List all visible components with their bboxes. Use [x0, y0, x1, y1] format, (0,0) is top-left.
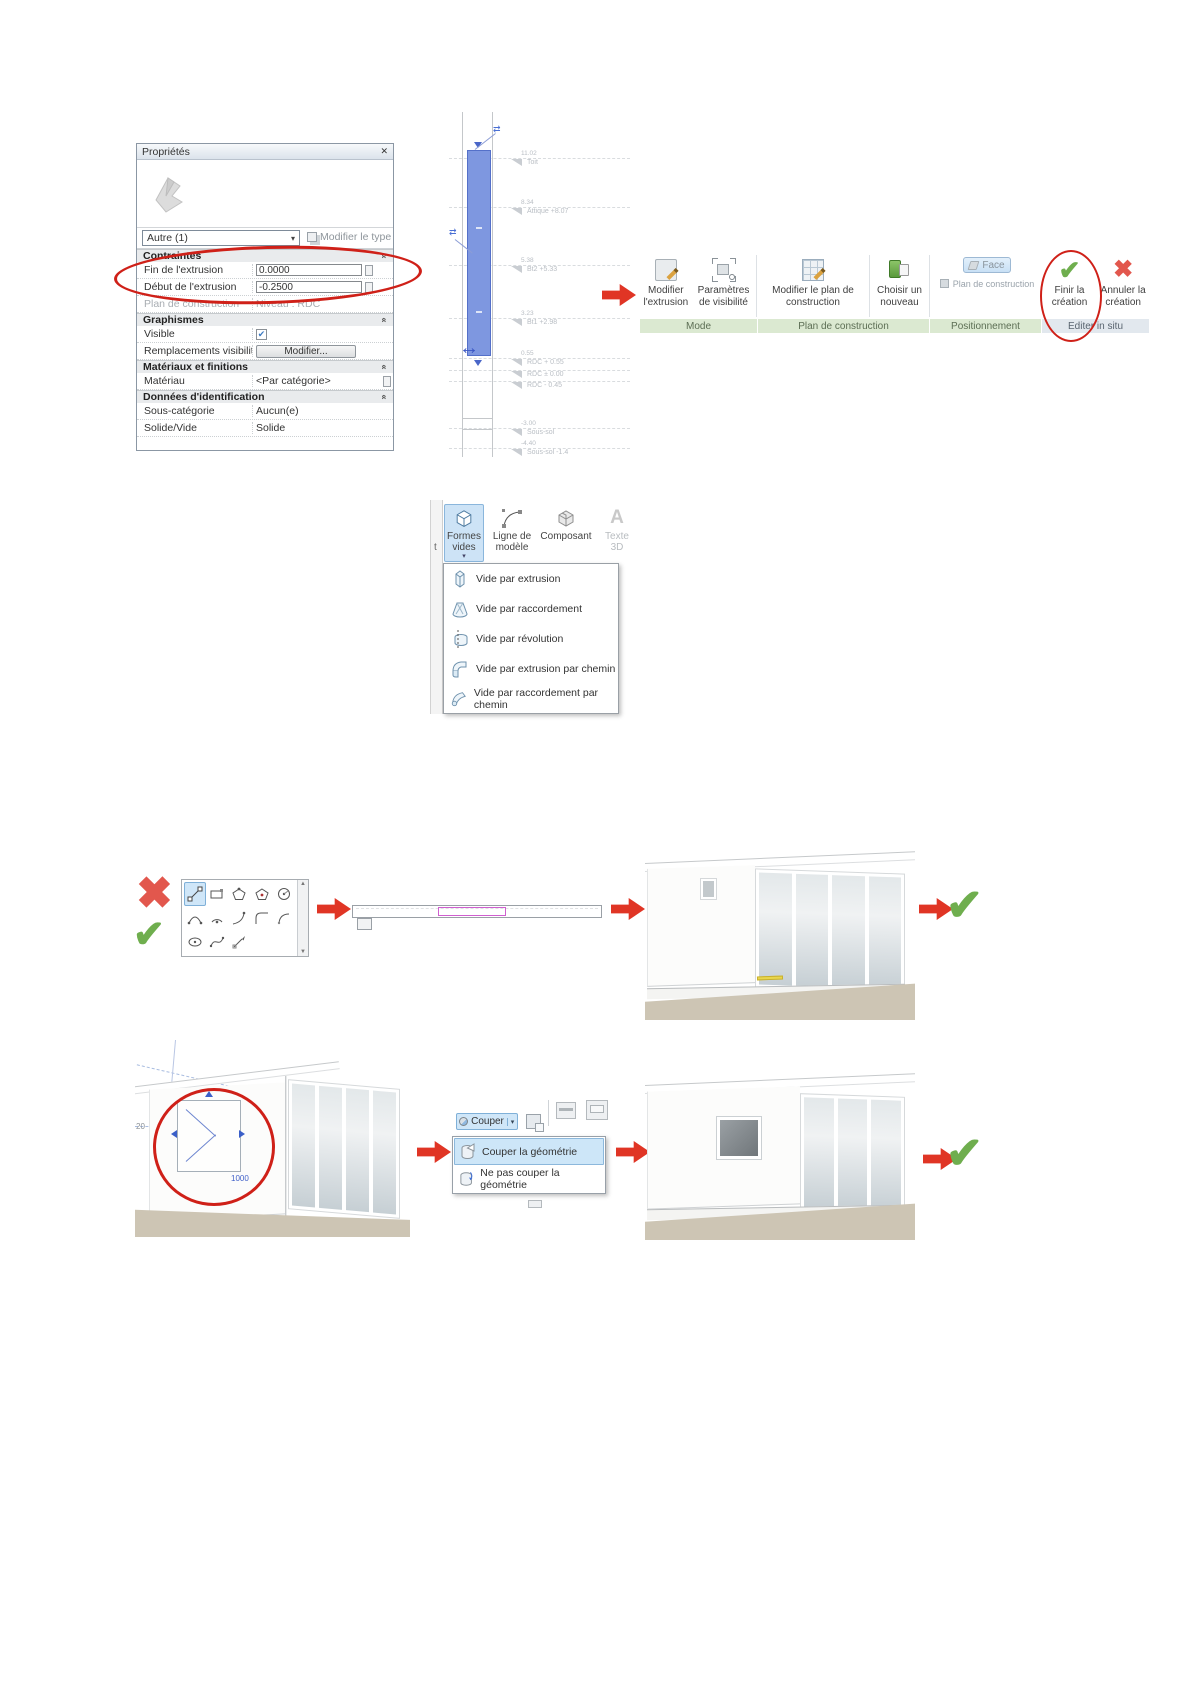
grip-handle[interactable]	[476, 311, 482, 313]
annuler-creation-button[interactable]: ✖ Annuler la création	[1096, 253, 1150, 319]
menu-item-vide-raccordement[interactable]: Vide par raccordement	[444, 594, 618, 624]
prop-value[interactable]: Solide	[253, 422, 391, 434]
properties-title: Propriétés	[142, 146, 190, 158]
glass-pane	[869, 876, 902, 989]
clipped-toolbar-icon	[556, 1102, 576, 1119]
group-mode: Mode	[640, 319, 758, 333]
close-icon[interactable]: ✕	[380, 146, 388, 157]
wall-line	[462, 418, 493, 419]
void-swept-blend-icon	[450, 688, 468, 710]
menu-item-vide-revolution[interactable]: Vide par révolution	[444, 624, 618, 654]
chevron-down-icon[interactable]: ▾	[291, 234, 295, 243]
chevron-down-icon[interactable]: ▾	[507, 1118, 517, 1126]
choisir-nouveau-button[interactable]: Choisir un nouveau	[871, 253, 929, 319]
glass-pane	[373, 1091, 396, 1215]
tool-line[interactable]	[184, 882, 206, 906]
uncut-geometry-icon	[458, 1169, 475, 1189]
type-selector-value: Autre (1)	[147, 232, 188, 244]
cancel-x-icon: ✖	[1113, 258, 1133, 282]
positionnement-stack: Face Plan de construction	[931, 253, 1042, 319]
void-forms-dropdown-menu: Vide par extrusion Vide par raccordement…	[443, 563, 619, 714]
pick-new-plane-icon	[887, 258, 911, 282]
menu-item-vide-extrusion-chemin[interactable]: Vide par extrusion par chemin	[444, 654, 618, 684]
modifier-extrusion-button[interactable]: Modifier l'extrusion	[640, 253, 692, 319]
beam-sketch	[350, 895, 608, 937]
prop-row-solide-vide: Solide/Vide Solide	[137, 420, 393, 437]
prop-label: Remplacements visibilité...	[137, 345, 253, 357]
void-extrusion-icon	[450, 568, 470, 590]
prop-row-materiau: Matériau <Par catégorie>	[137, 373, 393, 390]
formes-vides-button[interactable]: Formes vides ▾	[444, 504, 484, 562]
model-line-icon	[499, 505, 525, 531]
modifier-button[interactable]: Modifier...	[256, 345, 356, 358]
prop-row-remplacements: Remplacements visibilité... Modifier...	[137, 343, 393, 360]
clipped-ui-fragment	[528, 1200, 542, 1208]
flow-arrow	[417, 1140, 451, 1164]
workplane-icon	[940, 279, 949, 288]
corner-edge	[285, 1076, 287, 1218]
edit-extrusion-icon	[655, 259, 677, 281]
corner-sketch-view: 1000 20	[135, 1040, 410, 1237]
flow-arrow	[317, 897, 351, 921]
tool-arc-tangent[interactable]	[228, 906, 250, 930]
beam-support	[357, 918, 372, 930]
properties-header: Propriétés ✕	[137, 144, 393, 160]
wall-edge-line	[492, 112, 493, 457]
menu-item-vide-raccordement-chemin[interactable]: Vide par raccordement par chemin	[444, 684, 618, 714]
tool-ellipse[interactable]	[184, 930, 206, 954]
collapse-icon[interactable]: «	[379, 364, 389, 369]
glass-pane	[804, 1097, 834, 1208]
shape-handle-icon[interactable]	[474, 360, 482, 366]
tool-spline[interactable]	[206, 930, 228, 954]
tool-rectangle[interactable]	[206, 882, 228, 906]
plan-construction-button[interactable]: Plan de construction	[934, 276, 1041, 291]
void-cube-icon	[451, 506, 477, 531]
stretch-arrow-icon[interactable]: ↔	[459, 338, 479, 358]
prop-label: Sous-catégorie	[137, 405, 253, 417]
clipped-label-fragment: t	[434, 542, 437, 553]
face-button[interactable]: Face	[963, 257, 1010, 273]
menu-item-couper-geometrie[interactable]: Couper la géométrie	[454, 1138, 604, 1165]
cut-dropdown-menu: Couper la géométrie Ne pas couper la géo…	[452, 1136, 606, 1194]
family-preview-image	[142, 166, 196, 220]
level-head-icon	[511, 266, 522, 273]
composant-button[interactable]: Composant	[540, 504, 592, 562]
tool-polygon-inscribed[interactable]	[228, 882, 250, 906]
cut-geometry-icon	[459, 1142, 477, 1162]
parametres-visibilite-button[interactable]: Paramètres de visibilité	[692, 253, 756, 319]
building-3d-view	[645, 843, 915, 1020]
visible-checkbox[interactable]: ✔	[256, 329, 267, 340]
chevron-down-icon: ▾	[462, 553, 466, 561]
cut-icon	[459, 1117, 468, 1126]
tool-polygon-circumscribed[interactable]	[251, 882, 273, 906]
modify-type-label: Modifier le type	[320, 231, 391, 243]
glass-pane	[319, 1086, 342, 1210]
type-preview	[137, 160, 393, 228]
small-window	[701, 879, 716, 899]
prop-row-sous-categorie: Sous-catégorie Aucun(e)	[137, 403, 393, 420]
level-head-icon	[511, 449, 522, 456]
tool-fillet-arc[interactable]	[251, 906, 273, 930]
modify-type-icon	[307, 232, 317, 242]
void-revolve-icon	[450, 628, 470, 650]
app-edge-strip: t	[430, 500, 443, 714]
section-donnees[interactable]: Données d'identification «	[137, 390, 393, 403]
curtain-wall	[800, 1093, 905, 1215]
level-head-icon	[511, 319, 522, 326]
prop-row-visible: Visible ✔	[137, 326, 393, 343]
level-head-icon	[511, 382, 522, 389]
wall-line	[462, 429, 493, 430]
glass-pane	[838, 1098, 868, 1209]
tool-circle[interactable]	[273, 882, 295, 906]
prop-label: Solide/Vide	[137, 422, 253, 434]
draw-tool-palette: ▲ ▼	[181, 879, 309, 957]
menu-item-ne-pas-couper[interactable]: Ne pas couper la géométrie	[454, 1165, 604, 1192]
section-label: Graphismes	[143, 314, 204, 326]
associate-param-button[interactable]	[383, 376, 391, 387]
face-icon	[968, 261, 980, 270]
level-head-icon	[511, 371, 522, 378]
component-icon	[553, 505, 579, 531]
annotation-x-icon: ✖	[136, 872, 173, 916]
level-marker: RDC - 0.45	[449, 381, 630, 382]
tool-arc-start-end[interactable]	[184, 906, 206, 930]
elevation-view: 11.02 Toit 8.34 Attique +8.07 5.38 Bt2 +…	[445, 112, 630, 457]
grip-handle[interactable]	[476, 227, 482, 229]
level-head-icon	[511, 429, 522, 436]
glass-pane	[759, 873, 792, 986]
wall-edge-line	[462, 112, 463, 457]
prop-label: Matériau	[137, 375, 253, 387]
glass-pane	[832, 875, 865, 988]
glass-pane	[796, 874, 829, 987]
group-plan-construction: Plan de construction	[758, 319, 930, 333]
collapse-icon[interactable]: «	[379, 317, 389, 322]
type-selector[interactable]: Autre (1) ▾	[142, 230, 300, 246]
section-materiaux[interactable]: Matériaux et finitions «	[137, 360, 393, 373]
glass-pane	[871, 1100, 901, 1211]
workplane-grid-icon	[802, 259, 824, 281]
cut-window-opening	[717, 1117, 761, 1159]
void-sketch-rectangle	[438, 907, 506, 916]
level-marker: RDC ± 0.00	[449, 370, 630, 371]
section-label: Matériaux et finitions	[143, 361, 248, 373]
annotation-ellipse-finish	[1040, 250, 1102, 342]
void-sweep-icon	[450, 658, 470, 680]
section-graphismes[interactable]: Graphismes «	[137, 313, 393, 326]
level-head-icon	[511, 159, 522, 166]
tool-arc-center-ends[interactable]	[206, 906, 228, 930]
scroll-down-icon[interactable]: ▼	[300, 949, 306, 955]
tool-arc-variant[interactable]	[273, 906, 295, 930]
section-label: Données d'identification	[143, 391, 265, 403]
modifier-plan-button[interactable]: Modifier le plan de construction	[758, 253, 867, 319]
ligne-modele-button[interactable]: Ligne de modèle	[490, 504, 534, 562]
flow-arrow	[611, 897, 645, 921]
glass-pane	[292, 1083, 315, 1207]
flip-control-icon[interactable]: ⇄	[449, 228, 457, 237]
join-geometry-icon[interactable]	[526, 1114, 541, 1129]
text-3d-icon: A	[610, 505, 624, 531]
cut-geometry-panel: Couper ▾ Couper la géométrie Ne pas coup…	[448, 1100, 616, 1212]
couper-button[interactable]: Couper ▾	[456, 1113, 518, 1130]
level-head-icon	[511, 359, 522, 366]
menu-item-vide-extrusion[interactable]: Vide par extrusion	[444, 564, 618, 594]
glass-pane	[346, 1088, 369, 1212]
forms-ribbon-panel: Formes vides ▾ Ligne de modèle Composant…	[444, 504, 636, 562]
annotation-ellipse-sketch	[153, 1088, 275, 1206]
tutorial-page: Propriétés ✕ Autre (1) ▾ Modifier le typ…	[0, 0, 1196, 1692]
annotation-check-icon: ✔	[946, 1132, 983, 1176]
prop-label: Visible	[137, 328, 253, 340]
tool-pick-lines[interactable]	[228, 930, 250, 954]
clipped-toolbar-icon	[586, 1100, 608, 1120]
texte-3d-button[interactable]: A Texte 3D	[598, 504, 636, 562]
dimension-value: 20	[136, 1122, 145, 1131]
annotation-check-icon: ✔	[133, 916, 165, 954]
palette-scrollbar[interactable]: ▲ ▼	[297, 880, 308, 956]
scroll-up-icon[interactable]: ▲	[300, 881, 306, 887]
modify-type-button[interactable]: Modifier le type	[307, 231, 391, 243]
annotation-check-icon: ✔	[946, 884, 983, 928]
level-head-icon	[511, 208, 522, 215]
prop-value[interactable]: <Par catégorie>	[253, 375, 380, 387]
toolbar-separator	[548, 1100, 549, 1126]
void-blend-icon	[450, 598, 470, 620]
building-3d-view-cut	[645, 1065, 915, 1240]
curtain-wall	[288, 1079, 400, 1219]
visibility-settings-icon	[712, 258, 736, 282]
collapse-icon[interactable]: «	[379, 394, 389, 399]
group-positionnement: Positionnement	[930, 319, 1042, 333]
level-marker: -4.40 Sous-sol -1.4	[449, 448, 630, 449]
prop-value[interactable]: Aucun(e)	[253, 405, 391, 417]
